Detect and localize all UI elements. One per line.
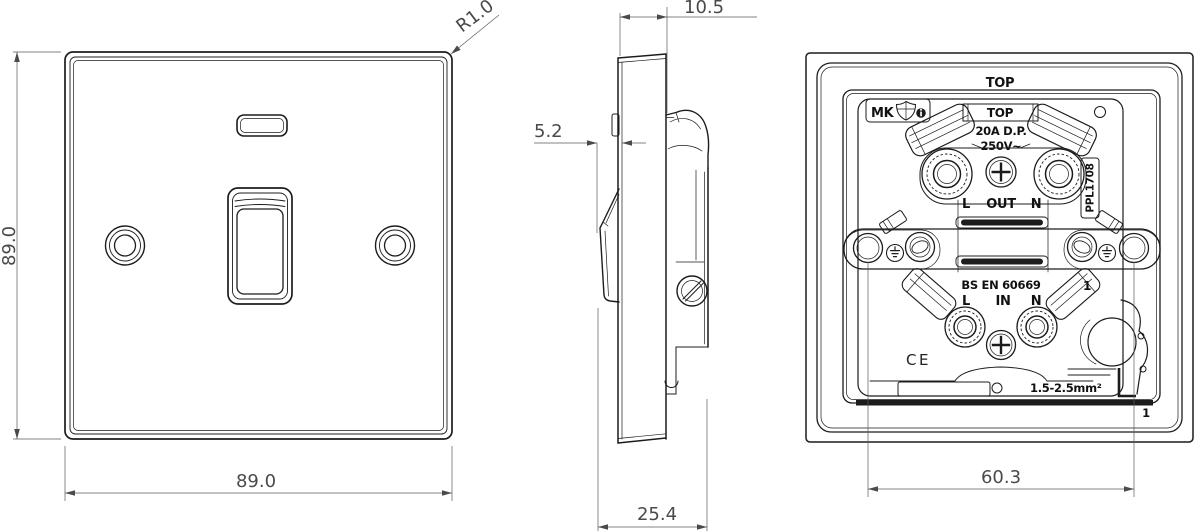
cable-clamp-upper-right <box>1025 101 1100 159</box>
side-plate-profile <box>618 54 666 443</box>
module-bottom-shadow <box>856 400 1153 406</box>
technical-drawing-sheet: 89.0 89.0 R1.0 <box>0 0 1199 532</box>
dim-front-height-text: 89.0 <box>0 226 20 266</box>
info-icon <box>916 108 926 118</box>
back-plate-top-label: TOP <box>986 76 1015 91</box>
earth-symbol-right <box>1099 245 1116 262</box>
dim-rocker-protrusion-text: 5.2 <box>534 121 563 142</box>
neon-indicator-window <box>237 115 287 136</box>
module-top-label: TOP <box>987 106 1014 120</box>
side-rocker-profile <box>600 189 619 302</box>
lower-center-screw <box>987 331 1016 360</box>
part-code-label: PPL1708 <box>1081 158 1099 218</box>
in-label: IN <box>995 294 1010 309</box>
terminal-out-n <box>1034 149 1084 199</box>
out-n-label: N <box>1031 197 1042 212</box>
terminal-in-n <box>1017 307 1057 347</box>
strap-fixing-hole-right <box>1120 234 1149 263</box>
module-lower-contour <box>870 367 1093 381</box>
small-hole <box>992 383 1002 393</box>
side-backbox-profile <box>665 110 709 394</box>
dim-front-width-text: 89.0 <box>236 471 276 492</box>
standard-label: BS EN 60669 <box>961 278 1041 292</box>
fixing-screw-right <box>376 226 415 265</box>
voltage-label: 250V~ <box>980 139 1021 153</box>
upper-center-screw <box>986 157 1016 187</box>
rating-label: 20A D.P. <box>975 124 1026 138</box>
module-fixing-hole-topright <box>1095 107 1106 118</box>
marker-lower-label: 1 <box>1142 406 1150 420</box>
out-l-label: L <box>962 197 970 212</box>
front-plate-outline <box>65 52 452 439</box>
cable-range-label: 1.5-2.5mm² <box>1030 381 1102 395</box>
out-label: OUT <box>986 197 1016 212</box>
terminal-out-l <box>922 149 972 199</box>
back-view: TOP MK <box>790 0 1199 532</box>
clamp-screw-right <box>1095 210 1123 234</box>
fixing-screw-left <box>106 226 145 265</box>
ce-mark: CE <box>906 351 931 369</box>
dim-fixing-centres-text: 60.3 <box>981 467 1021 488</box>
dimension-corner-radius: R1.0 <box>451 0 499 54</box>
rocker-switch <box>228 188 292 304</box>
wire-slot-upper <box>956 217 1048 228</box>
dimension-front-width: 89.0 <box>65 446 452 501</box>
brand-text: MK <box>871 106 895 121</box>
part-code-text: PPL1708 <box>1085 163 1097 212</box>
dim-plate-depth-text: 10.5 <box>684 0 724 18</box>
wire-slot-lower <box>956 256 1048 267</box>
upper-terminal-block <box>920 148 1086 204</box>
side-terminal-screw <box>677 276 707 306</box>
terminal-in-l <box>945 307 985 347</box>
dimension-rocker-protrusion: 5.2 <box>534 121 646 233</box>
shield-icon <box>897 102 916 121</box>
side-view: 10.5 5.2 25.4 <box>520 0 790 532</box>
dimension-overall-depth: 25.4 <box>598 308 707 531</box>
earth-terminal-left <box>906 233 935 262</box>
earth-symbol-left <box>887 245 904 262</box>
dimension-front-height: 89.0 <box>0 52 61 439</box>
dim-overall-depth-text: 25.4 <box>637 504 677 525</box>
clamp-screw-left <box>879 210 907 234</box>
earth-terminal-right <box>1068 233 1097 262</box>
front-view: 89.0 89.0 R1.0 <box>0 0 520 532</box>
dim-corner-radius-text: R1.0 <box>452 0 497 37</box>
rating-plate-blank <box>898 382 990 396</box>
brand-logo-box: MK <box>866 99 930 122</box>
module-top-tab: TOP <box>963 104 1038 121</box>
